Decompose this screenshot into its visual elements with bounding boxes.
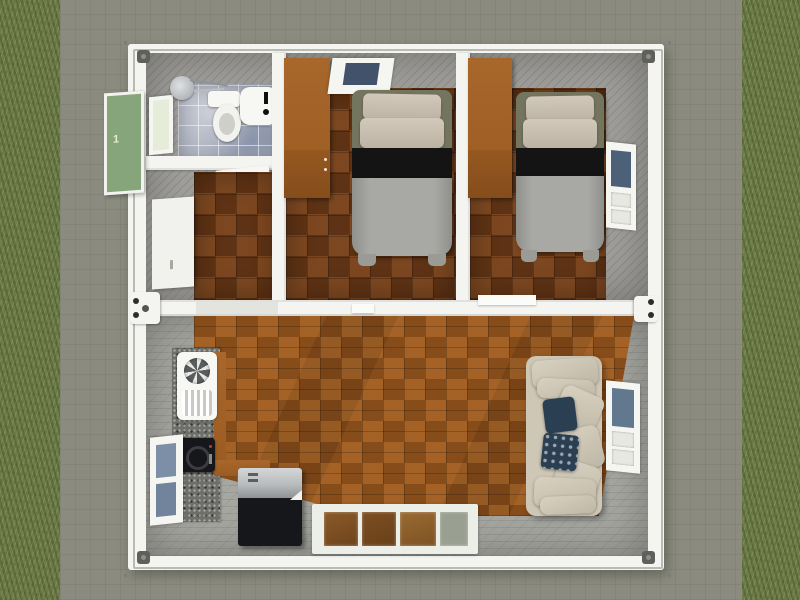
corner-screw2-icon bbox=[668, 41, 671, 44]
kitchen-window bbox=[150, 434, 183, 525]
wardrobe1-handle-icon bbox=[324, 158, 327, 161]
basin-faucet-icon bbox=[264, 92, 268, 104]
bed2-foot-right bbox=[583, 250, 599, 262]
corner-casting-top-right bbox=[642, 50, 655, 63]
bedroom1-window-glass bbox=[343, 63, 380, 85]
bed2-pillow-top bbox=[526, 95, 594, 121]
bed1-black-throw bbox=[352, 148, 452, 178]
cooktop bbox=[180, 438, 215, 472]
entry-door-handle-icon bbox=[170, 260, 173, 269]
freezer-vent-icon bbox=[248, 479, 258, 482]
bathroom-window-glass bbox=[153, 99, 169, 151]
bedroom2-window-slat1 bbox=[611, 192, 631, 208]
corner-casting-bottom-left bbox=[137, 551, 150, 564]
connector-bolt4-icon bbox=[648, 312, 654, 318]
seam-connector-left bbox=[130, 292, 160, 324]
hallway-threshold bbox=[196, 302, 278, 314]
sink-drainer-grooves bbox=[182, 390, 212, 416]
corner-casting-top-left bbox=[137, 50, 150, 63]
bedroom2-window-slat2 bbox=[611, 209, 631, 225]
toilet-bowl bbox=[213, 104, 241, 142]
connector-bolt3-icon bbox=[648, 299, 654, 305]
sliding-door-pane2 bbox=[362, 512, 396, 546]
sliding-door-pane3 bbox=[400, 512, 436, 546]
bed2-blanket bbox=[516, 176, 604, 252]
corner-screw4-icon bbox=[668, 574, 671, 577]
bed1-pillow-bottom bbox=[360, 118, 444, 148]
cooktop-controls-icon bbox=[209, 454, 212, 464]
connector-bolt2-icon bbox=[133, 312, 139, 318]
bed1-foot-right bbox=[428, 254, 446, 266]
living-window-glass bbox=[612, 388, 634, 428]
bathroom-window bbox=[149, 95, 173, 156]
bed2-foot-left bbox=[521, 250, 537, 262]
sliding-door-frame bbox=[312, 504, 478, 554]
bed1-blanket bbox=[352, 178, 452, 256]
bedroom1-wardrobe bbox=[284, 58, 330, 198]
bed1-foot-left bbox=[358, 254, 376, 266]
cooktop-burner-icon bbox=[186, 446, 210, 470]
kitchen-sink bbox=[177, 352, 217, 420]
house-number-label: 1 bbox=[113, 133, 119, 145]
wardrobe1-handle2-icon bbox=[324, 168, 327, 171]
hallway-entry-door-panel bbox=[152, 197, 194, 290]
kitchen-window-glass-bottom bbox=[156, 482, 176, 517]
sofa-armrest-bottom2 bbox=[540, 495, 597, 515]
basin-drain-icon bbox=[263, 109, 269, 115]
toilet-bowl-inner bbox=[219, 113, 235, 135]
navy-pillow-patterned bbox=[540, 432, 580, 472]
wardrobe2-front bbox=[468, 150, 512, 198]
living-window-slat1 bbox=[612, 431, 634, 448]
cooktop-indicator-icon bbox=[209, 445, 212, 448]
bed2-black-throw bbox=[516, 148, 604, 176]
sliding-door-pane4 bbox=[440, 512, 468, 546]
freezer-lid-notch bbox=[290, 490, 302, 500]
bedroom2-wardrobe bbox=[468, 58, 512, 198]
bedroom2-side-window bbox=[606, 141, 636, 230]
freezer-handle-icon bbox=[248, 473, 258, 476]
chest-freezer bbox=[238, 468, 302, 546]
bedroom2-window-glass bbox=[611, 150, 631, 188]
navy-pillow-solid bbox=[542, 396, 578, 434]
connector-bolt-icon bbox=[133, 298, 139, 304]
corner-screw1-icon bbox=[124, 41, 127, 44]
corner-screw3-icon bbox=[124, 574, 127, 577]
floorplan-scene: 1 bbox=[0, 0, 800, 600]
kitchen-window-glass-top bbox=[156, 443, 176, 478]
sink-drain-fan-icon bbox=[184, 358, 210, 384]
green-entry-door: 1 bbox=[104, 91, 144, 196]
bed1-pillow-top bbox=[363, 93, 441, 120]
bed2-pillow-bottom bbox=[523, 119, 597, 148]
bedroom2-door-threshold bbox=[478, 295, 536, 305]
hallway-floor bbox=[194, 172, 278, 300]
living-room-window bbox=[606, 380, 640, 474]
seam-connector-right bbox=[634, 296, 658, 322]
corner-casting-bottom-right bbox=[642, 551, 655, 564]
living-window-slat2 bbox=[612, 449, 634, 466]
bedroom1-window bbox=[327, 58, 394, 94]
bedroom1-door-threshold bbox=[352, 304, 374, 313]
connector-hinge-icon bbox=[142, 305, 149, 312]
sliding-door-pane1 bbox=[324, 512, 358, 546]
wardrobe1-front bbox=[284, 150, 330, 198]
